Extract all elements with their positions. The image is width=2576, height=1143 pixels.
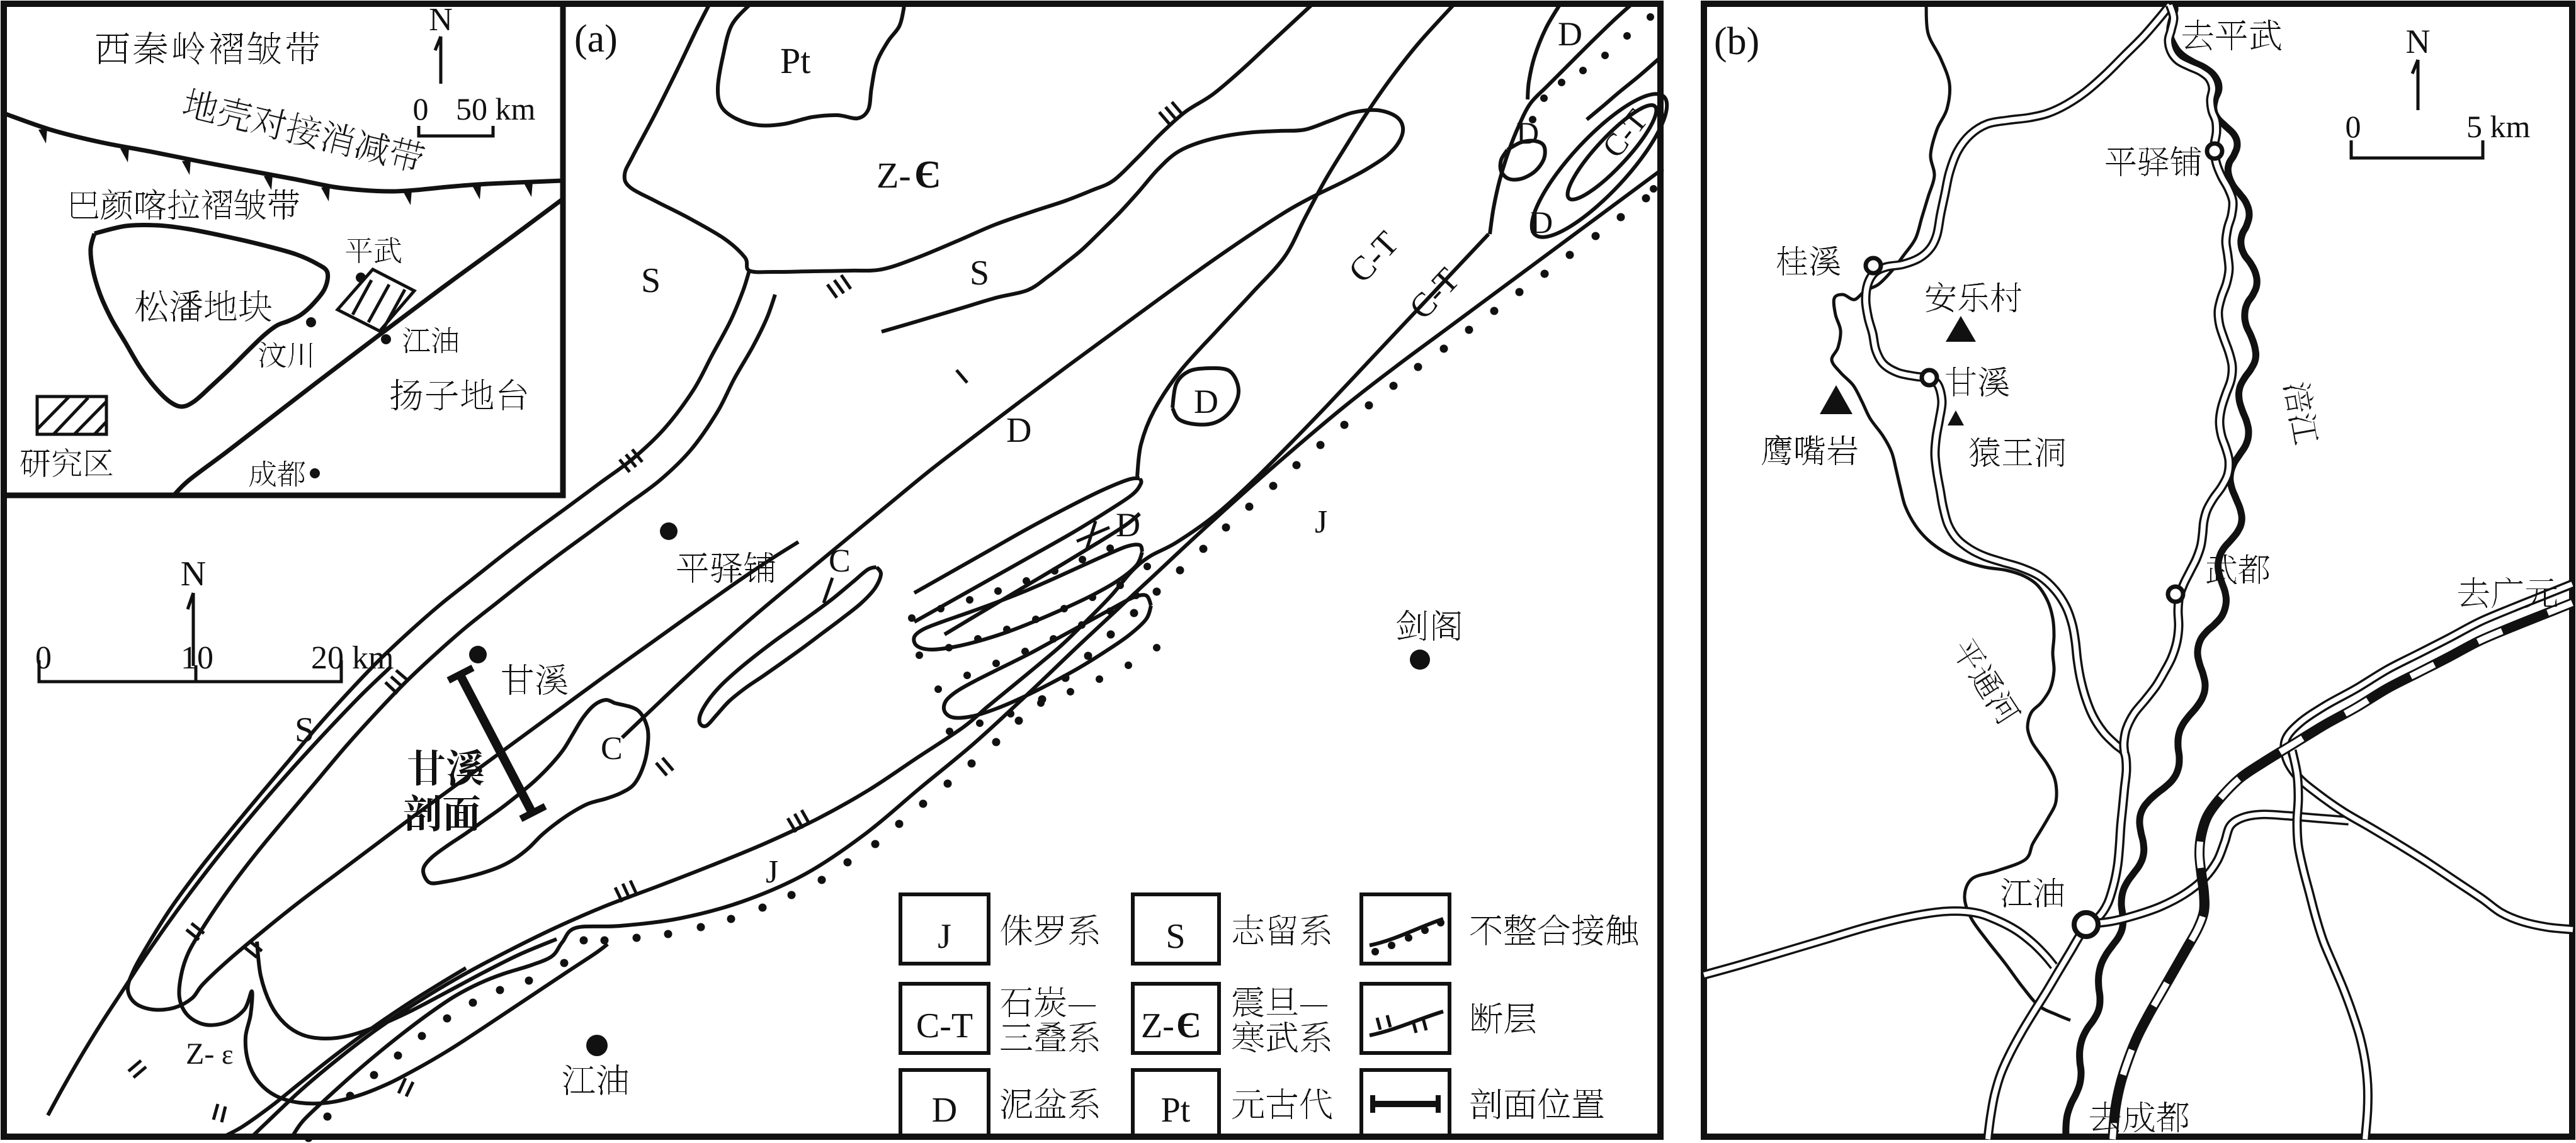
- svg-text:Z-: Z-: [1141, 1006, 1174, 1045]
- svg-text:S: S: [295, 711, 314, 750]
- svg-text:N: N: [2406, 23, 2431, 60]
- svg-text:S: S: [1166, 917, 1185, 956]
- svg-text:D: D: [1516, 115, 1539, 150]
- svg-text:N: N: [181, 555, 206, 594]
- svg-text:Є: Є: [1176, 1005, 1201, 1045]
- svg-text:10: 10: [181, 640, 213, 676]
- svg-text:D: D: [932, 1091, 957, 1130]
- svg-text:0: 0: [413, 91, 429, 127]
- svg-text:50 km: 50 km: [456, 91, 536, 127]
- svg-text:S: S: [641, 261, 661, 300]
- svg-text:(b): (b): [1714, 20, 1759, 63]
- svg-text:J: J: [766, 854, 778, 890]
- svg-text:D: D: [1558, 15, 1582, 53]
- svg-text:J: J: [938, 917, 951, 956]
- svg-text:Pt: Pt: [1161, 1091, 1191, 1130]
- svg-text:5 km: 5 km: [2466, 109, 2531, 144]
- svg-text:C-T: C-T: [916, 1006, 973, 1045]
- svg-text:(a): (a): [574, 18, 618, 60]
- svg-text:D: D: [1116, 506, 1140, 544]
- svg-text:D: D: [1006, 411, 1031, 450]
- svg-text:C: C: [601, 731, 623, 767]
- svg-text:Z-: Z-: [877, 155, 911, 196]
- svg-text:20 km: 20 km: [311, 640, 394, 676]
- svg-text:S: S: [970, 254, 989, 293]
- svg-text:0: 0: [35, 640, 52, 676]
- svg-text:0: 0: [2346, 109, 2361, 144]
- svg-text:Є: Є: [914, 154, 941, 196]
- svg-text:ε: ε: [222, 1039, 233, 1070]
- svg-text:D: D: [1530, 205, 1553, 240]
- svg-text:Pt: Pt: [780, 40, 810, 81]
- svg-text:Z-: Z-: [186, 1037, 214, 1071]
- svg-text:N: N: [429, 2, 453, 38]
- svg-text:D: D: [1194, 383, 1218, 420]
- svg-text:J: J: [1315, 504, 1327, 540]
- svg-text:C: C: [829, 543, 851, 579]
